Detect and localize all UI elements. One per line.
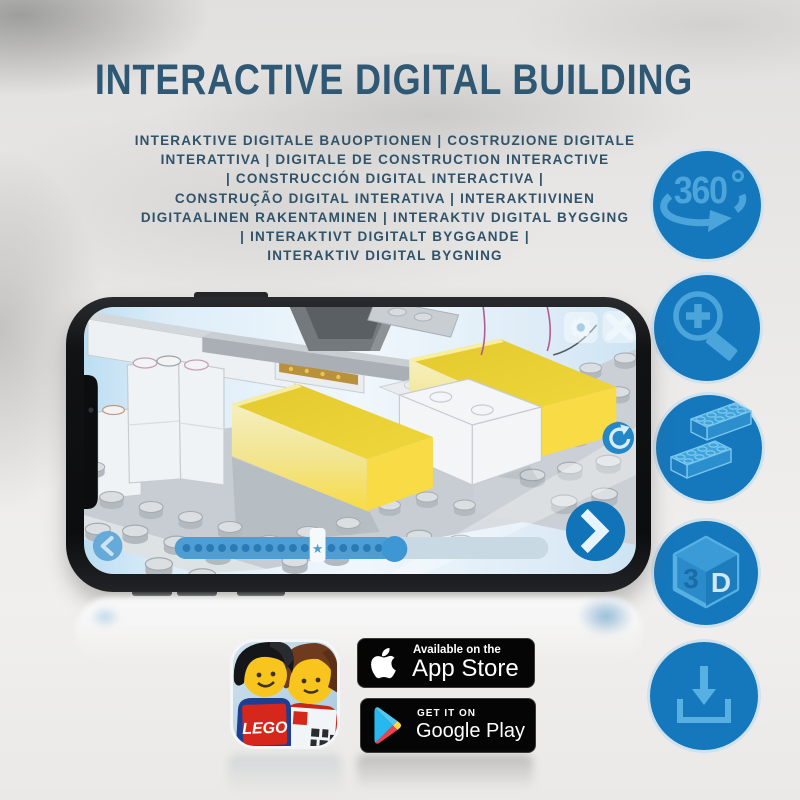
svg-text:360: 360: [674, 168, 727, 211]
svg-text:D: D: [711, 567, 731, 598]
svg-text:★: ★: [312, 541, 323, 556]
svg-text:3: 3: [683, 563, 699, 594]
svg-text:LEGO: LEGO: [242, 719, 288, 738]
